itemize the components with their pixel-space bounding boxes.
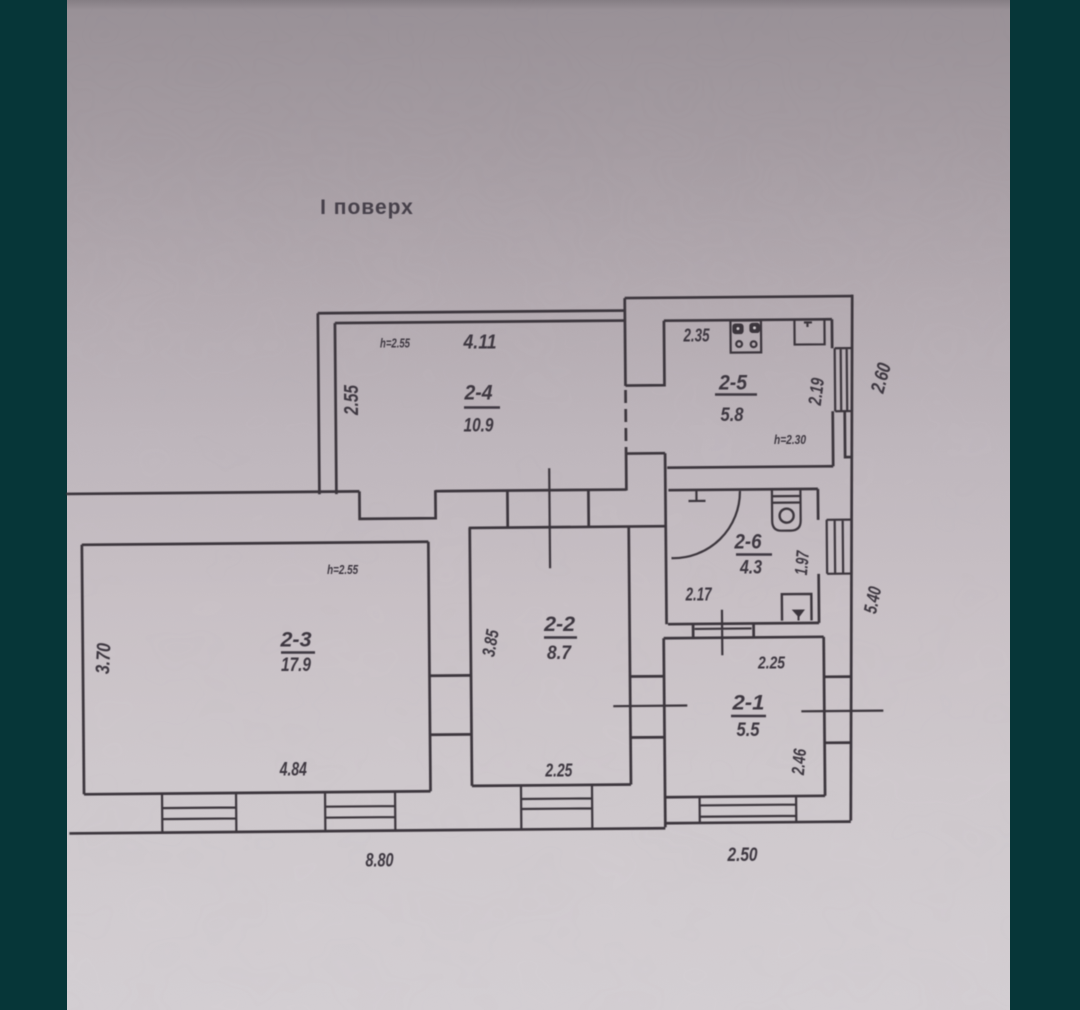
svg-text:2.60: 2.60	[867, 361, 896, 397]
svg-text:2.25: 2.25	[545, 759, 573, 780]
svg-text:2.35: 2.35	[683, 326, 710, 346]
svg-text:2.17: 2.17	[685, 585, 712, 605]
svg-text:1.97: 1.97	[791, 550, 813, 576]
svg-text:17.9: 17.9	[281, 654, 311, 676]
svg-text:2-6: 2-6	[734, 531, 762, 554]
svg-text:2.19: 2.19	[804, 376, 828, 407]
svg-text:2-4: 2-4	[464, 382, 493, 405]
svg-text:2.25: 2.25	[757, 653, 785, 673]
svg-text:5.8: 5.8	[721, 404, 744, 426]
svg-text:5.5: 5.5	[737, 719, 761, 741]
svg-text:2-5: 2-5	[718, 372, 747, 395]
svg-text:2-3: 2-3	[279, 629, 311, 652]
svg-text:4.3: 4.3	[739, 557, 762, 579]
svg-text:h=2.55: h=2.55	[380, 336, 411, 351]
svg-text:h=2.30: h=2.30	[774, 432, 807, 447]
svg-text:10.9: 10.9	[464, 415, 494, 437]
svg-text:4.84: 4.84	[279, 759, 307, 780]
svg-text:h=2.55: h=2.55	[327, 562, 359, 577]
svg-text:2.46: 2.46	[788, 747, 810, 776]
svg-text:2-2: 2-2	[543, 613, 575, 636]
svg-text:2-1: 2-1	[731, 692, 764, 715]
svg-text:2.50: 2.50	[727, 845, 758, 866]
svg-text:3.85: 3.85	[478, 627, 503, 658]
svg-text:2.55: 2.55	[340, 385, 363, 416]
svg-text:4.11: 4.11	[463, 331, 497, 353]
svg-text:І поверх: І поверх	[320, 196, 414, 219]
svg-text:8.7: 8.7	[547, 642, 572, 664]
svg-text:5.40: 5.40	[859, 584, 885, 615]
svg-text:8.80: 8.80	[366, 850, 394, 871]
svg-text:3.70: 3.70	[92, 642, 116, 674]
